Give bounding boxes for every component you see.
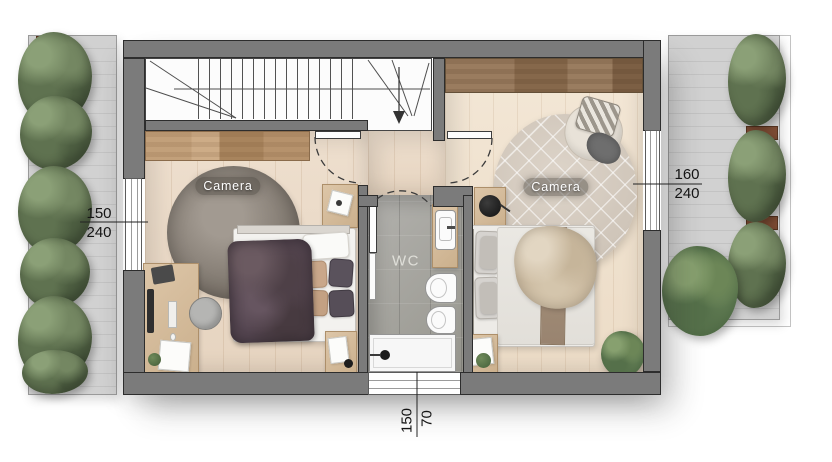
- door-swing-arcs: [315, 137, 492, 206]
- stair-arrow-icon: [393, 67, 405, 124]
- linework-overlay: [0, 0, 832, 462]
- dimension-right-width: 160: [662, 167, 712, 182]
- door-arc-bedroom-left: [315, 137, 361, 183]
- dimension-bottom-width: 150: [400, 400, 415, 442]
- room-label-bedroom-right: Camera: [523, 178, 588, 196]
- dimension-lines: [80, 184, 702, 437]
- room-label-wc: WC: [392, 253, 420, 270]
- door-arc-wc: [377, 191, 431, 206]
- dimension-right-height: 240: [662, 186, 712, 201]
- dimension-bottom-height: 70: [420, 398, 435, 440]
- stair-winder-lines: [146, 60, 430, 118]
- floor-plan: Camera Camera WC 150 240 160 240 150 70: [0, 0, 832, 462]
- dimension-left-width: 150: [74, 206, 124, 221]
- room-label-bedroom-left: Camera: [195, 177, 260, 195]
- dimension-left-height: 240: [74, 225, 124, 240]
- door-arc-bedroom-right: [447, 138, 492, 183]
